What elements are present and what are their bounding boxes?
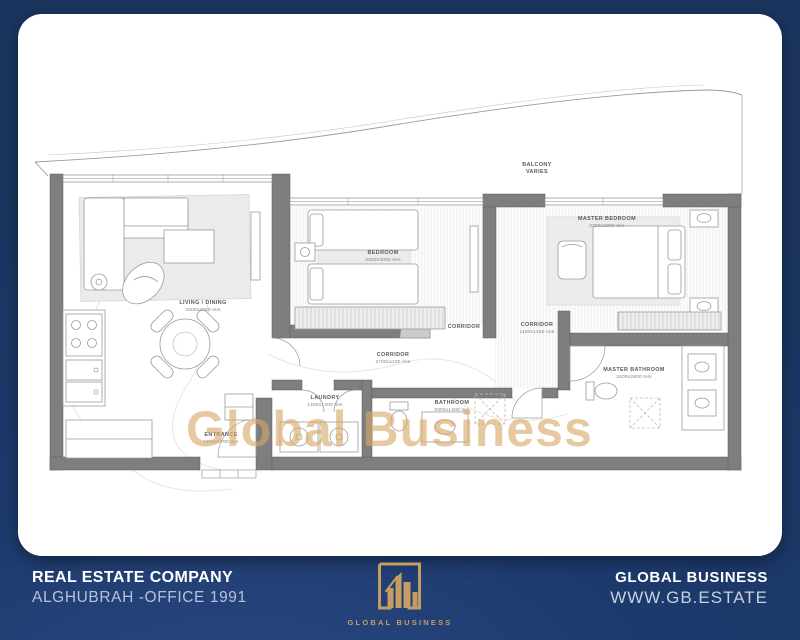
svg-text:2400x2800 mm: 2400x2800 mm — [616, 374, 651, 380]
master-bathroom-fixtures — [586, 346, 724, 430]
entrance-step — [202, 470, 256, 478]
brand-logo-icon — [378, 562, 422, 610]
brand-name: GLOBAL BUSINESS — [610, 569, 768, 586]
brand-logo-label: GLOBAL BUSINESS — [348, 618, 453, 627]
svg-text:CORRIDOR: CORRIDOR — [521, 322, 554, 328]
room-label-balcony: BALCONY VARIES — [522, 162, 551, 175]
svg-text:3400x4000 mm: 3400x4000 mm — [185, 307, 220, 313]
watermark-text: Global Business — [186, 401, 593, 457]
svg-text:CORRIDOR: CORRIDOR — [377, 352, 410, 358]
room-label-corridor-main: CORRIDOR 2700x1100 mm — [375, 352, 410, 365]
svg-text:2700x1100 mm: 2700x1100 mm — [375, 359, 410, 365]
office-label: ALGHUBRAH -OFFICE 1991 — [32, 589, 247, 607]
website-url[interactable]: WWW.GB.ESTATE — [610, 588, 768, 608]
footer-brand-block: GLOBAL BUSINESS WWW.GB.ESTATE — [610, 569, 768, 608]
svg-text:MASTER BEDROOM: MASTER BEDROOM — [578, 216, 636, 222]
company-label: REAL ESTATE COMPANY — [32, 569, 247, 587]
floorplan-card: BALCONY VARIES LIVING / DINING 3400x4000… — [18, 14, 782, 556]
footer-company-block: REAL ESTATE COMPANY ALGHUBRAH -OFFICE 19… — [32, 569, 247, 607]
floor-plan: BALCONY VARIES LIVING / DINING 3400x4000… — [18, 14, 782, 556]
svg-text:CORRIDOR: CORRIDOR — [448, 324, 481, 330]
room-label-corridor-mid: CORRIDOR — [448, 324, 481, 330]
svg-text:3400x3000 mm: 3400x3000 mm — [365, 257, 400, 263]
brand-logo: GLOBAL BUSINESS — [348, 562, 453, 627]
svg-text:VARIES: VARIES — [526, 169, 548, 175]
brochure-frame: BALCONY VARIES LIVING / DINING 3400x4000… — [0, 0, 800, 640]
room-label-living-dining: LIVING / DINING 3400x4000 mm — [179, 300, 226, 313]
living-room-furniture — [79, 195, 260, 381]
svg-text:2300x2000 mm: 2300x2000 mm — [589, 223, 624, 229]
svg-text:1100x1400 mm: 1100x1400 mm — [519, 329, 554, 335]
room-label-master-bathroom: MASTER BATHROOM 2400x2800 mm — [603, 367, 665, 380]
svg-text:BEDROOM: BEDROOM — [368, 250, 399, 256]
svg-text:BALCONY: BALCONY — [522, 162, 551, 168]
footer-bar: REAL ESTATE COMPANY ALGHUBRAH -OFFICE 19… — [0, 556, 800, 640]
svg-text:LIVING / DINING: LIVING / DINING — [179, 300, 226, 306]
svg-text:MASTER BATHROOM: MASTER BATHROOM — [603, 367, 665, 373]
